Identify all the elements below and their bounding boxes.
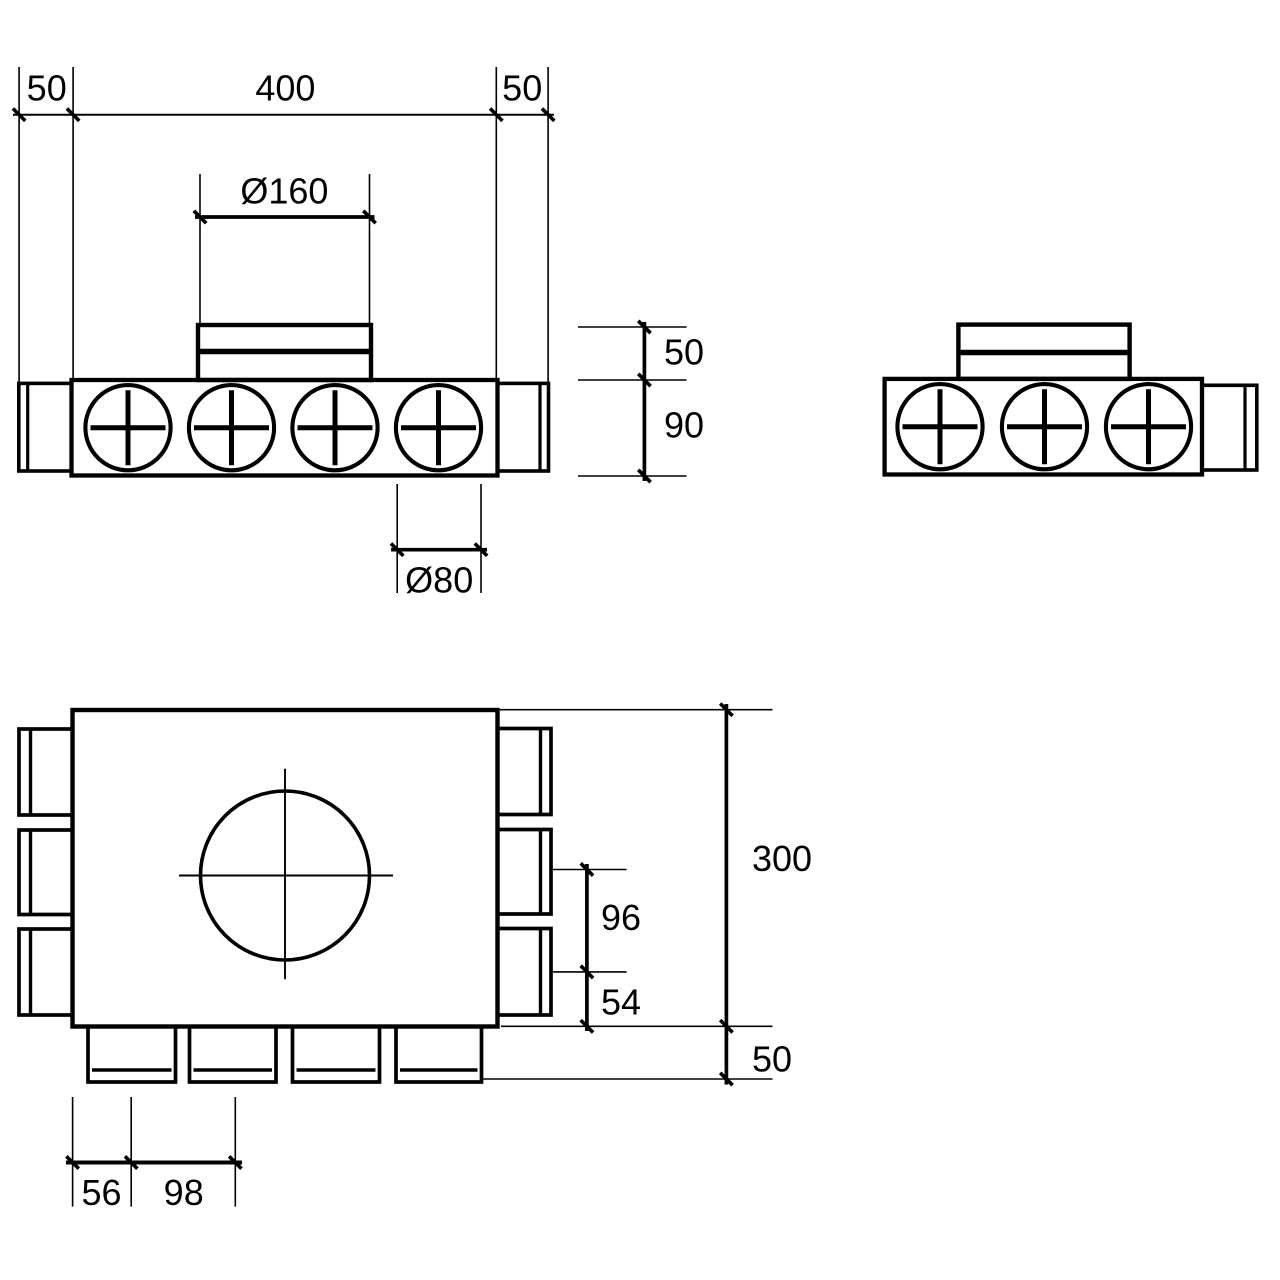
svg-text:56: 56 [81,1172,121,1213]
svg-text:50: 50 [502,67,542,108]
svg-text:50: 50 [27,67,67,108]
svg-text:300: 300 [752,838,812,879]
svg-text:98: 98 [164,1172,204,1213]
svg-text:50: 50 [752,1039,792,1080]
svg-text:50: 50 [664,332,704,373]
svg-text:400: 400 [255,67,315,108]
svg-text:Ø160: Ø160 [240,170,328,211]
svg-text:90: 90 [664,405,704,446]
svg-text:54: 54 [601,982,641,1023]
svg-text:Ø80: Ø80 [405,560,473,601]
svg-text:96: 96 [601,897,641,938]
